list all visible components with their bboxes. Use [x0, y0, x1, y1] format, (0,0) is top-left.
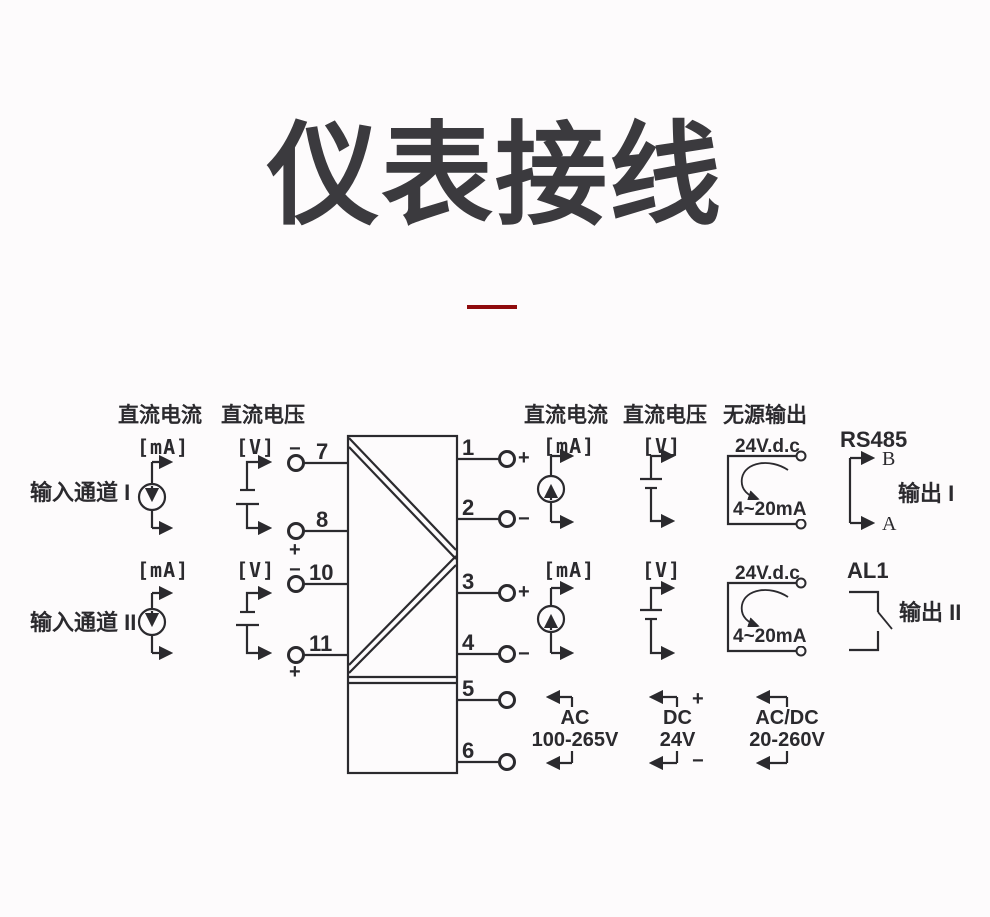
output-voltage-header: 直流电压	[623, 405, 707, 426]
passive1-range-label: 4~20mA	[731, 500, 808, 519]
power-option-acdc: AC/DC 20-260V	[737, 707, 837, 751]
output1-ma-unit: [mA]	[543, 436, 595, 456]
terminal-7-number: 7	[316, 441, 328, 463]
terminal-11-plus: +	[289, 662, 301, 682]
output1-current-source-icon	[538, 456, 572, 522]
input1-ma-unit: [mA]	[137, 437, 189, 457]
terminal-8-plus: +	[289, 540, 301, 560]
output1-battery-icon	[640, 456, 673, 521]
input1-v-unit: [V]	[236, 437, 275, 457]
power-dc-range: 24V	[630, 729, 725, 751]
input-channel2-label: 输入通道 II	[30, 612, 136, 634]
rs485-b-label: B	[882, 449, 895, 469]
power-option-dc: DC 24V	[630, 707, 725, 751]
output2-battery-icon	[640, 588, 673, 653]
terminal-5-number: 5	[462, 678, 474, 700]
passive1-voltage-label: 24V.d.c	[735, 437, 800, 456]
terminal-11-number: 11	[309, 633, 332, 655]
terminal-8-circle	[289, 524, 304, 539]
terminal-7-minus: −	[289, 439, 301, 459]
terminal-2-circle	[500, 512, 515, 527]
power-minus: −	[692, 751, 704, 771]
terminal-1-circle	[500, 452, 515, 467]
terminal-4-circle	[500, 647, 515, 662]
terminal-1-number: 1	[462, 437, 474, 459]
passive2-voltage-label: 24V.d.c	[735, 564, 800, 583]
input1-current-source-icon	[139, 462, 171, 528]
output2-ma-unit: [mA]	[543, 560, 595, 580]
terminal-3-number: 3	[462, 571, 474, 593]
input-current-header: 直流电流	[118, 405, 202, 426]
power-ac-range: 100-265V	[515, 729, 635, 751]
al1-relay-contact-icon	[849, 592, 892, 650]
al1-label: AL1	[847, 560, 889, 582]
isolator-device-body	[348, 436, 457, 773]
wiring-diagram-page: { "colors": {"bg": "#fdfbfc", "ink": "#2…	[0, 0, 990, 917]
passive2-range-label: 4~20mA	[731, 627, 808, 646]
rs485-header: RS485	[840, 429, 907, 451]
passive-output-header: 无源输出	[723, 405, 807, 426]
power-acdc-range: 20-260V	[737, 729, 837, 751]
input1-battery-icon	[236, 462, 270, 528]
output2-label: 输出 II	[899, 602, 961, 624]
terminal-3-plus: +	[518, 582, 530, 602]
terminal-4-minus: −	[518, 644, 530, 664]
rs485-a-label: A	[882, 514, 896, 534]
output-current-header: 直流电流	[524, 405, 608, 426]
terminal-6-number: 6	[462, 740, 474, 762]
power-option-ac: AC 100-265V	[515, 707, 635, 751]
terminal-6-circle	[500, 755, 515, 770]
terminal-1-plus: +	[518, 448, 530, 468]
output1-v-unit: [V]	[642, 436, 681, 456]
terminal-8-number: 8	[316, 509, 328, 531]
terminal-10-number: 10	[309, 562, 333, 584]
rs485-bracket	[850, 458, 873, 523]
input2-ma-unit: [mA]	[137, 560, 189, 580]
output2-current-source-icon	[538, 588, 572, 653]
terminal-3-circle	[500, 586, 515, 601]
input2-current-source-icon	[139, 593, 171, 653]
power-plus: +	[692, 689, 704, 709]
loop-current-arrow	[742, 590, 788, 626]
terminal-2-number: 2	[462, 497, 474, 519]
terminal-10-minus: −	[289, 560, 301, 580]
output2-v-unit: [V]	[642, 560, 681, 580]
power-ac-type: AC	[515, 707, 635, 729]
terminal-4-number: 4	[462, 632, 474, 654]
power-acdc-type: AC/DC	[737, 707, 837, 729]
power-dc-type: DC	[630, 707, 725, 729]
input2-v-unit: [V]	[236, 560, 275, 580]
input2-battery-icon	[236, 593, 270, 653]
input-channel1-label: 输入通道 I	[30, 482, 130, 504]
terminal-2-minus: −	[518, 509, 530, 529]
loop-current-arrow	[742, 463, 788, 499]
terminal-5-circle	[500, 693, 515, 708]
input-voltage-header: 直流电压	[221, 405, 305, 426]
output1-label: 输出 I	[898, 483, 954, 505]
